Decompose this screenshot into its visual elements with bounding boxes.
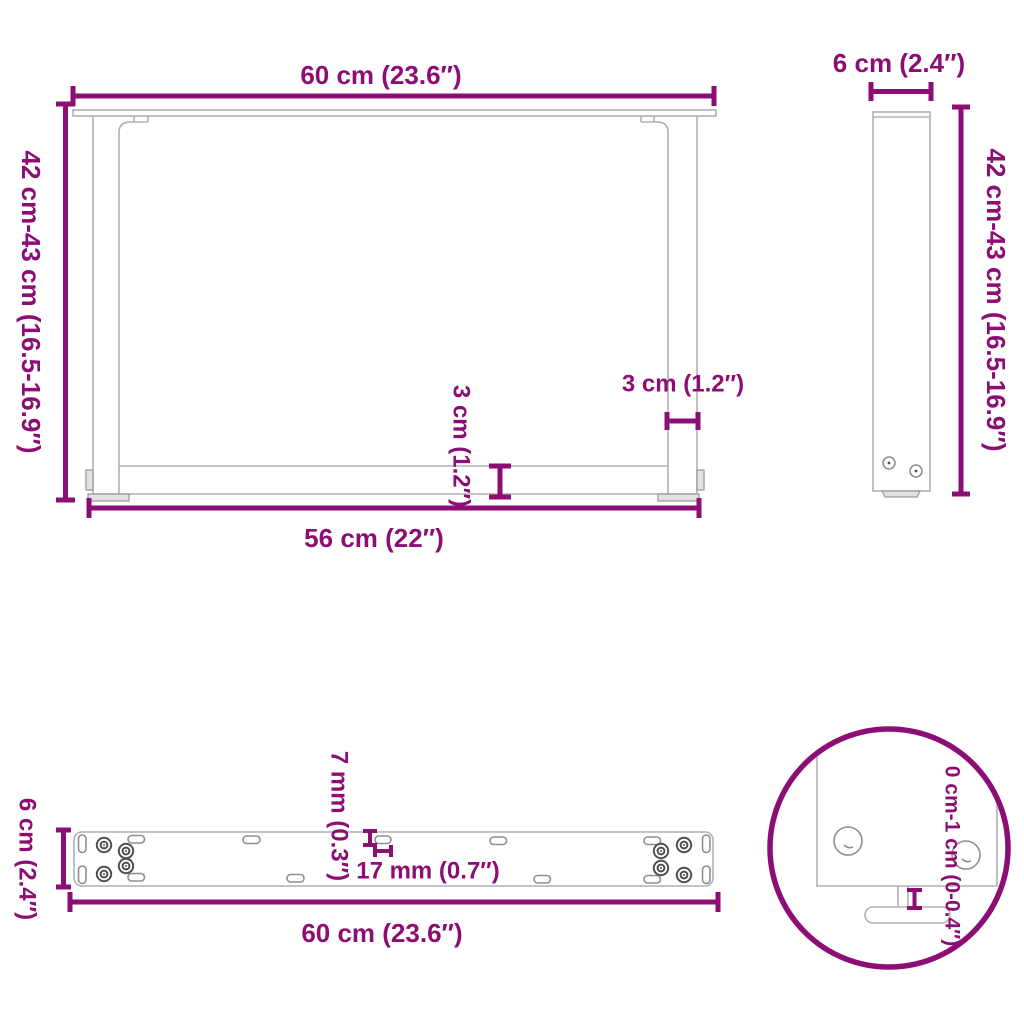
front-crossbar-thickness-dimension <box>489 466 511 497</box>
side-foot <box>882 491 920 497</box>
front-height-dimension <box>56 104 75 500</box>
front-view: 60 cm (23.6″) 42 cm-43 cm (16.5-16.9″) 3… <box>16 60 744 553</box>
side-height-label: 42 cm-43 cm (16.5-16.9″) <box>981 149 1011 452</box>
slot-hole <box>703 835 711 853</box>
slot-hole <box>490 837 507 845</box>
slot-hole-dimensioned <box>375 836 391 844</box>
detail-adjust-range-label: 0 cm-1 cm (0-0.4″) <box>941 766 964 946</box>
slot-hole <box>243 836 260 844</box>
front-left-adjuster-tab <box>86 470 93 490</box>
screw-slot-mark <box>844 845 853 848</box>
front-left-leg <box>93 116 148 494</box>
front-height-label: 42 cm-43 cm (16.5-16.9″) <box>16 151 46 454</box>
front-leg-thickness-dimension <box>667 412 698 430</box>
front-crossbar-thickness-label: 3 cm (1.2″) <box>448 385 475 507</box>
slot-hole <box>128 836 145 844</box>
front-top-plate <box>73 110 716 116</box>
front-right-leg <box>641 116 697 494</box>
foot-detail-view: 0 cm-1 cm (0-0.4″) <box>770 722 1008 967</box>
slot-hole <box>287 875 304 883</box>
front-bottom-width-dimension <box>89 498 699 518</box>
plate-slot-width-label: 17 mm (0.7″) <box>356 858 500 885</box>
plate-length-dimension <box>70 892 718 912</box>
slot-hole <box>644 876 661 884</box>
front-top-width-label: 60 cm (23.6″) <box>300 60 461 90</box>
front-leg-thickness-label: 3 cm (1.2″) <box>622 371 744 398</box>
foot-detail-content <box>817 722 997 923</box>
slot-hole <box>79 835 87 853</box>
front-crossbar <box>93 466 697 494</box>
plate-depth-label: 6 cm (2.4″) <box>14 798 41 920</box>
detail-circle-border <box>770 729 1008 967</box>
side-depth-dimension <box>871 82 931 101</box>
slot-hole <box>79 866 87 884</box>
side-view: 6 cm (2.4″) 42 cm-43 cm (16.5-16.9″) <box>833 48 1011 497</box>
screw-icon <box>834 827 862 855</box>
front-right-foot <box>658 494 699 501</box>
front-left-foot <box>88 494 129 501</box>
plate-depth-dimension <box>56 830 71 887</box>
diagram-canvas: 60 cm (23.6″) 42 cm-43 cm (16.5-16.9″) 3… <box>0 0 1024 1024</box>
front-right-adjuster-tab <box>697 470 704 490</box>
dimension-diagram: 60 cm (23.6″) 42 cm-43 cm (16.5-16.9″) 3… <box>0 0 1024 1024</box>
plate-length-label: 60 cm (23.6″) <box>301 918 462 948</box>
side-leg <box>873 112 930 491</box>
slot-hole <box>128 874 145 882</box>
plate-slot-height-label: 7 mm (0.3″) <box>326 751 353 881</box>
detail-foot-stem <box>898 886 908 907</box>
front-bottom-width-label: 56 cm (22″) <box>304 523 444 553</box>
plate-top-view: 6 cm (2.4″) 7 mm (0.3″) 17 mm (0.7″) 60 … <box>14 751 719 948</box>
side-depth-label: 6 cm (2.4″) <box>833 48 965 78</box>
slot-hole <box>703 866 711 884</box>
slot-hole <box>534 876 551 884</box>
side-height-dimension <box>952 107 970 494</box>
detail-adjust-dimension <box>907 890 922 908</box>
